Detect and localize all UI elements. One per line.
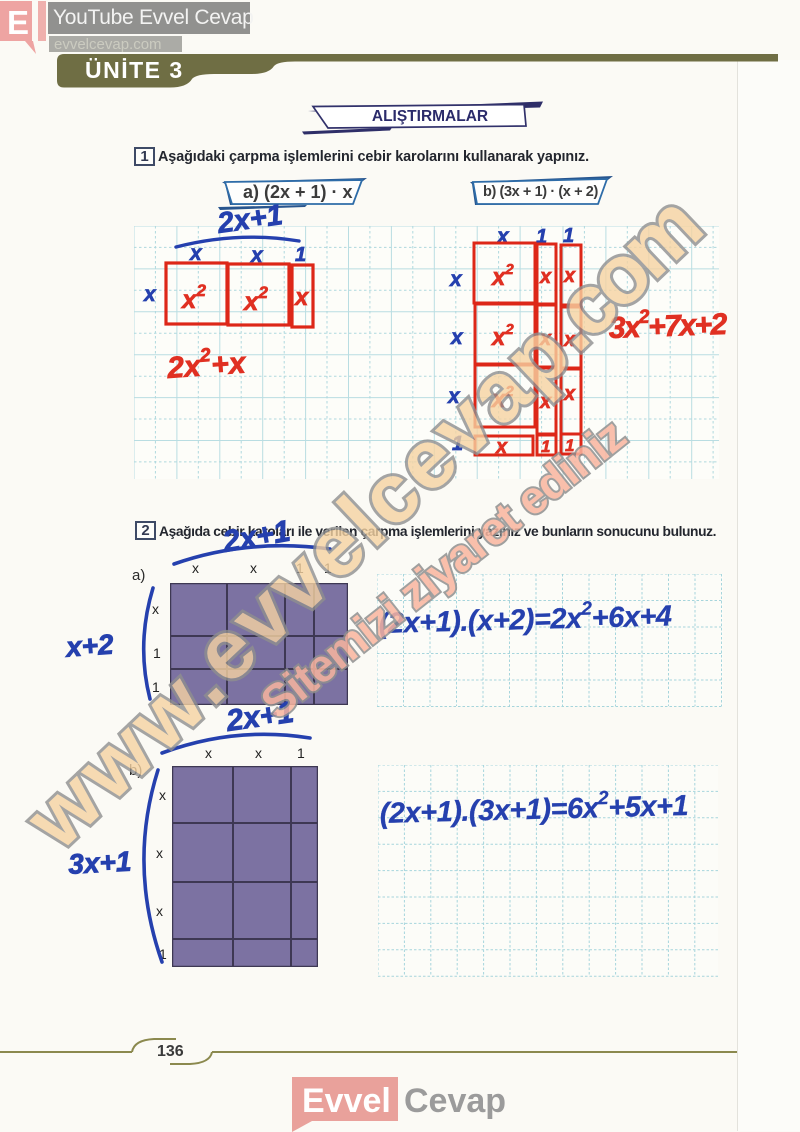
svg-text:www.: www. [7, 637, 241, 866]
